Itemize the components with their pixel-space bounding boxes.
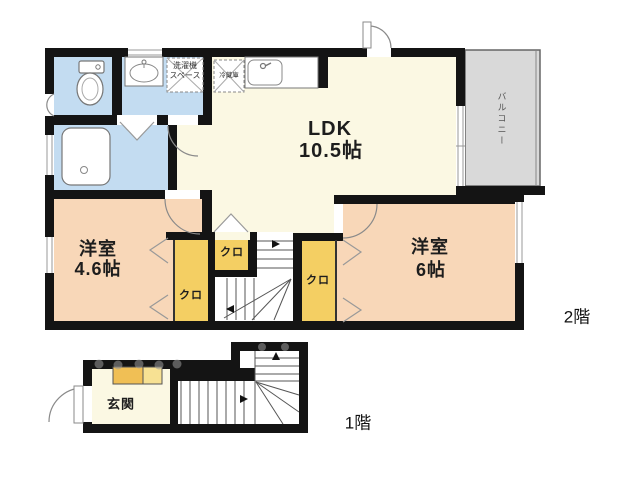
window-bedroom-right — [515, 202, 524, 263]
window-balcony-door — [456, 106, 465, 186]
fridge-label: 冷蔵庫 — [219, 73, 239, 80]
wall-segment — [456, 186, 545, 195]
ldk-label: LDK — [308, 119, 352, 139]
wall-segment — [302, 233, 343, 241]
wall-segment — [198, 115, 212, 125]
closet-right-label: クロ — [306, 276, 330, 287]
floor-plan: LDK 10.5帖 洋室 4.6帖 洋室 6帖 クロ クロ クロ バルコニー 冷… — [0, 0, 640, 480]
washer-label-line1: 洗濯機 — [173, 62, 197, 70]
bedroom-right-label: 洋室 — [411, 238, 449, 256]
balcony-label: バルコニー — [497, 92, 506, 147]
wall-segment — [45, 321, 524, 330]
bedroom-right-size: 6帖 — [416, 261, 446, 279]
wall-segment — [45, 48, 465, 57]
wall-segment — [456, 48, 465, 106]
wall-segment — [83, 424, 308, 433]
entrance-door-leaf — [74, 386, 83, 423]
wall-segment — [334, 195, 524, 204]
wall-segment — [248, 240, 257, 277]
wall-segment — [83, 360, 92, 386]
bathtub-icon — [62, 128, 110, 185]
wall-segment — [231, 342, 308, 351]
shoe-cabinet — [113, 367, 143, 384]
wall-segment — [318, 48, 328, 88]
kitchen-sink-icon — [245, 57, 318, 88]
door-gap — [334, 204, 343, 233]
wall-segment — [203, 57, 212, 125]
wall-segment — [299, 342, 308, 433]
toilet-icon — [77, 61, 104, 105]
wall-segment — [250, 232, 257, 240]
wall-segment — [208, 240, 215, 321]
ldk-size-label: 10.5帖 — [299, 141, 363, 161]
window-top — [128, 48, 162, 57]
wall-segment — [45, 190, 165, 199]
door-gap — [367, 48, 391, 57]
stairs1f-run — [173, 381, 299, 424]
wall-segment — [45, 48, 54, 330]
floor1-tag: 1階 — [345, 415, 371, 432]
ldk-entry-door-leaf — [363, 22, 371, 48]
washer-label-line2: スペース — [169, 72, 200, 80]
ldk-entry-door-arc — [369, 26, 391, 48]
shoe-cabinet — [143, 367, 162, 384]
entrance-label: 玄関 — [107, 398, 135, 411]
washbasin-icon — [125, 57, 163, 86]
closet-tall — [174, 240, 210, 321]
wall-segment — [112, 57, 122, 115]
closet-front-line — [173, 240, 175, 321]
door-gap — [168, 115, 198, 125]
window-bathroom — [45, 135, 54, 175]
wall-segment — [45, 115, 117, 125]
closet-tall-label: クロ — [179, 291, 203, 302]
wall-segment — [157, 115, 168, 125]
closet-small-label: クロ — [220, 248, 244, 259]
door-gap — [165, 190, 200, 199]
floor2-tag: 2階 — [564, 309, 590, 326]
bedroom-left-label: 洋室 — [79, 240, 117, 258]
bedroom-left-size: 4.6帖 — [74, 260, 121, 278]
wall-segment — [170, 368, 178, 425]
wall-segment — [293, 233, 302, 321]
window-bedroom-left — [45, 237, 54, 273]
door-gap — [83, 386, 92, 422]
closet-front-line — [335, 240, 337, 321]
wall-segment — [170, 368, 255, 381]
